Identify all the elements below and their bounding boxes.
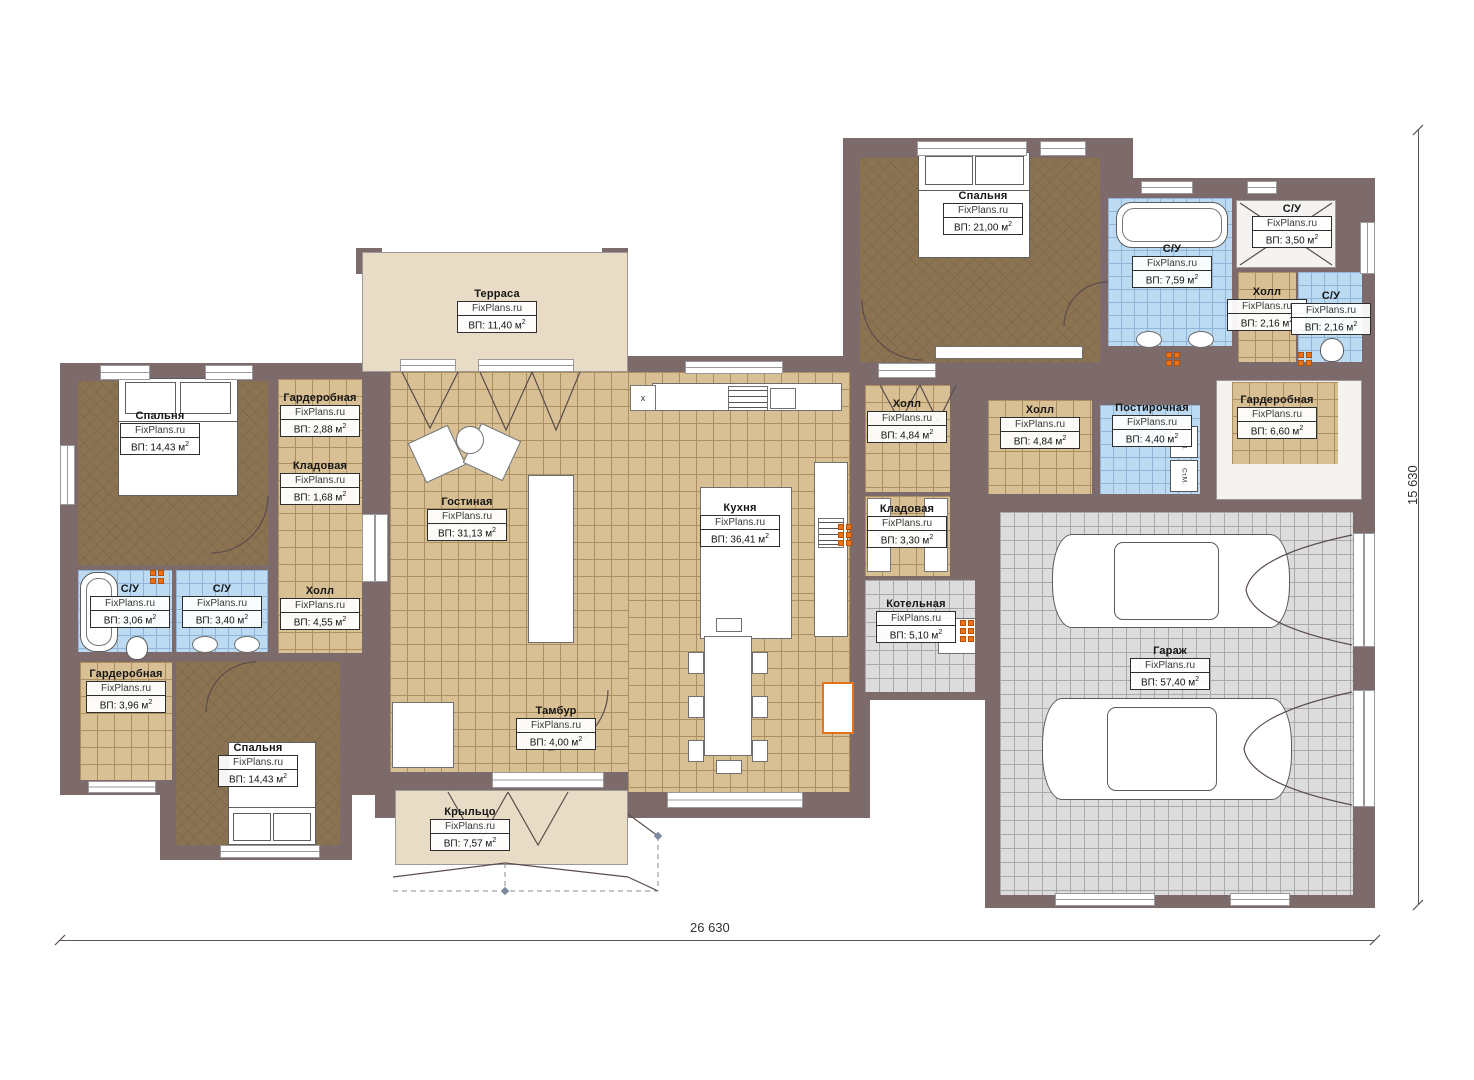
room-area: ВП: 14,43 м2 [218, 769, 298, 787]
room-su-tr2-label: С/УFixPlans.ruВП: 3,50 м2 [1252, 203, 1332, 248]
room-area: ВП: 3,40 м2 [182, 610, 262, 628]
heater-dot [846, 540, 852, 546]
watermark: FixPlans.ru [1252, 216, 1332, 231]
room-terrace-label: ТеррасаFixPlans.ruВП: 11,40 м2 [457, 288, 537, 333]
room-bedroom-tl-label: СпальняFixPlans.ruВП: 14,43 м2 [120, 410, 200, 455]
furniture-item [716, 760, 742, 774]
room-name: С/У [1322, 290, 1340, 302]
room-area: ВП: 1,68 м2 [280, 487, 360, 505]
watermark: FixPlans.ru [876, 611, 956, 626]
room-area: ВП: 7,57 м2 [430, 833, 510, 851]
watermark: FixPlans.ru [280, 598, 360, 613]
room-su-l2-label: С/УFixPlans.ruВП: 3,40 м2 [182, 583, 262, 628]
watermark: FixPlans.ru [1237, 407, 1317, 422]
room-name: Крыльцо [444, 806, 495, 818]
heater-dot [1298, 360, 1304, 366]
watermark: FixPlans.ru [457, 301, 537, 316]
room-name: Холл [1026, 404, 1054, 416]
room-name: Котельная [886, 598, 945, 610]
x-marker: x [630, 385, 656, 411]
room-name: Спальня [959, 190, 1008, 202]
room-name: Гардеробная [283, 392, 356, 404]
room-name: Кладовая [880, 503, 934, 515]
room-name: С/У [1163, 243, 1181, 255]
window-horizontal [1141, 181, 1193, 194]
heater-dot [158, 570, 164, 576]
room-laundry-label: ПостирочнаяFixPlans.ruВП: 4,40 м2 [1112, 402, 1192, 447]
window-horizontal [685, 361, 783, 374]
furniture-item [528, 475, 574, 643]
room-hall-r-label: ХоллFixPlans.ruВП: 4,84 м2 [1000, 404, 1080, 449]
window-horizontal [400, 359, 456, 372]
furniture-item [688, 740, 704, 762]
heater-dot [846, 524, 852, 530]
sink-icon [1136, 331, 1162, 348]
room-area: ВП: 4,84 м2 [1000, 431, 1080, 449]
room-pantry-c-label: КладоваяFixPlans.ruВП: 3,30 м2 [867, 503, 947, 548]
furniture-item [770, 388, 796, 409]
room-area: ВП: 36,41 м2 [700, 529, 780, 547]
room-area: ВП: 3,50 м2 [1252, 230, 1332, 248]
room-bedroom-tr-label: СпальняFixPlans.ruВП: 21,00 м2 [943, 190, 1023, 235]
room-hall-l-floor [278, 513, 362, 653]
heater-dot [1166, 352, 1172, 358]
watermark: FixPlans.ru [90, 596, 170, 611]
watermark: FixPlans.ru [218, 755, 298, 770]
heater-dot [968, 628, 974, 634]
watermark: FixPlans.ru [1291, 303, 1371, 318]
heater-dot [960, 636, 966, 642]
window-horizontal [667, 792, 803, 808]
watermark: FixPlans.ru [1130, 658, 1210, 673]
washing-machine-icon: Ст.М. [1170, 460, 1198, 492]
heater-dot [838, 532, 844, 538]
room-area: ВП: 2,88 м2 [280, 419, 360, 437]
watermark: FixPlans.ru [867, 516, 947, 531]
room-name: Холл [306, 585, 334, 597]
room-hall-l-label: ХоллFixPlans.ruВП: 4,55 м2 [280, 585, 360, 630]
room-wardrobe-r-label: ГардеробнаяFixPlans.ruВП: 6,60 м2 [1237, 394, 1317, 439]
room-name: Кладовая [293, 460, 347, 472]
window-horizontal [1247, 181, 1277, 194]
room-name: Кухня [723, 502, 756, 514]
room-area: ВП: 3,06 м2 [90, 610, 170, 628]
room-living-label: ГостинаяFixPlans.ruВП: 31,13 м2 [427, 496, 507, 541]
toilet-icon [126, 636, 148, 660]
room-name: Холл [893, 398, 921, 410]
room-garage-label: ГаражFixPlans.ruВП: 57,40 м2 [1130, 645, 1210, 690]
furniture-item [814, 462, 848, 637]
room-area: ВП: 6,60 м2 [1237, 421, 1317, 439]
watermark: FixPlans.ru [1112, 415, 1192, 430]
dimension-width-label: 26 630 [690, 920, 730, 935]
heater-dot [1306, 360, 1312, 366]
window-horizontal [1230, 893, 1290, 906]
car-icon [1052, 534, 1290, 628]
room-porch-label: КрыльцоFixPlans.ruВП: 7,57 м2 [430, 806, 510, 851]
heater-dot [846, 532, 852, 538]
room-bedroom-bl-label: СпальняFixPlans.ruВП: 14,43 м2 [218, 742, 298, 787]
room-name: Постирочная [1115, 402, 1189, 414]
heater-dot [960, 628, 966, 634]
room-area: ВП: 57,40 м2 [1130, 672, 1210, 690]
room-area: ВП: 3,30 м2 [867, 530, 947, 548]
furniture-item [935, 346, 1083, 359]
room-area: ВП: 4,40 м2 [1112, 429, 1192, 447]
bathtub-icon [1116, 202, 1228, 248]
dimension-line-bottom [60, 940, 1375, 941]
room-name: Спальня [136, 410, 185, 422]
room-area: ВП: 21,00 м2 [943, 217, 1023, 235]
window-vertical [1353, 690, 1375, 807]
watermark: FixPlans.ru [427, 509, 507, 524]
room-boiler-label: КотельнаяFixPlans.ruВП: 5,10 м2 [876, 598, 956, 643]
dimension-line-right [1418, 130, 1419, 905]
sink-icon [192, 636, 218, 653]
room-area: ВП: 14,43 м2 [120, 437, 200, 455]
room-area: ВП: 4,00 м2 [516, 732, 596, 750]
watermark: FixPlans.ru [280, 473, 360, 488]
window-horizontal [205, 365, 253, 380]
room-area: ВП: 2,16 м2 [1291, 317, 1371, 335]
watermark: FixPlans.ru [86, 681, 166, 696]
window-horizontal [100, 365, 150, 380]
furniture-item [688, 652, 704, 674]
room-wardrobe-bl-label: ГардеробнаяFixPlans.ruВП: 3,96 м2 [86, 668, 166, 713]
room-kitchen-label: КухняFixPlans.ruВП: 36,41 м2 [700, 502, 780, 547]
furniture-item [752, 652, 768, 674]
window-vertical [1360, 222, 1375, 274]
heater-dot [838, 540, 844, 546]
window-vertical [60, 445, 75, 505]
room-name: Терраса [474, 288, 520, 300]
window-horizontal [220, 845, 320, 858]
window-horizontal [878, 363, 936, 378]
furniture-item [392, 702, 454, 768]
room-name: Холл [1253, 286, 1281, 298]
room-area: ВП: 4,55 м2 [280, 612, 360, 630]
window-vertical [362, 514, 388, 582]
room-su-tr1-label: С/УFixPlans.ruВП: 7,59 м2 [1132, 243, 1212, 288]
room-name: С/У [213, 583, 231, 595]
watermark: FixPlans.ru [280, 405, 360, 420]
window-horizontal [1040, 141, 1086, 156]
room-name: Гардеробная [1240, 394, 1313, 406]
watermark: FixPlans.ru [943, 203, 1023, 218]
floor-plan-canvas: 26 630 15 630 ✕✕Ст.М.Ст.М.xТеррасаFixPla… [0, 0, 1474, 1080]
room-area: ВП: 3,96 м2 [86, 695, 166, 713]
sink-icon [1188, 331, 1214, 348]
room-name: С/У [1283, 203, 1301, 215]
furniture-item [688, 696, 704, 718]
room-name: Спальня [234, 742, 283, 754]
room-area: ВП: 7,59 м2 [1132, 270, 1212, 288]
heater-dot [960, 620, 966, 626]
radiator-icon [822, 682, 854, 734]
heater-dot [838, 524, 844, 530]
heater-dot [968, 620, 974, 626]
room-area: ВП: 5,10 м2 [876, 625, 956, 643]
heater-dot [1166, 360, 1172, 366]
room-name: Тамбур [535, 705, 576, 717]
toilet-icon [1320, 338, 1344, 362]
sink-icon [234, 636, 260, 653]
car-icon [1042, 698, 1292, 800]
window-horizontal [478, 359, 574, 372]
watermark: FixPlans.ru [516, 718, 596, 733]
window-horizontal [917, 141, 1027, 156]
window-horizontal [492, 772, 604, 788]
watermark: FixPlans.ru [700, 515, 780, 530]
stove-icon [728, 386, 768, 411]
room-name: Гардеробная [89, 668, 162, 680]
room-su-tr3-label: С/УFixPlans.ruВП: 2,16 м2 [1291, 290, 1371, 335]
furniture-item [704, 636, 752, 756]
window-horizontal [1055, 893, 1155, 906]
room-pantry-l-label: КладоваяFixPlans.ruВП: 1,68 м2 [280, 460, 360, 505]
room-name: Гостиная [441, 496, 492, 508]
room-area: ВП: 4,84 м2 [867, 425, 947, 443]
room-area: ВП: 31,13 м2 [427, 523, 507, 541]
furniture-item [752, 740, 768, 762]
heater-dot [150, 570, 156, 576]
watermark: FixPlans.ru [1000, 417, 1080, 432]
window-horizontal [88, 781, 156, 793]
furniture-item [716, 618, 742, 632]
heater-dot [1298, 352, 1304, 358]
watermark: FixPlans.ru [867, 411, 947, 426]
room-wardrobe-tl-label: ГардеробнаяFixPlans.ruВП: 2,88 м2 [280, 392, 360, 437]
watermark: FixPlans.ru [120, 423, 200, 438]
furniture-item [752, 696, 768, 718]
watermark: FixPlans.ru [1132, 256, 1212, 271]
room-name: С/У [121, 583, 139, 595]
room-su-l1-label: С/УFixPlans.ruВП: 3,06 м2 [90, 583, 170, 628]
heater-dot [1174, 360, 1180, 366]
heater-dot [1306, 352, 1312, 358]
heater-dot [1174, 352, 1180, 358]
window-vertical [1353, 533, 1375, 647]
watermark: FixPlans.ru [430, 819, 510, 834]
room-hall-c-label: ХоллFixPlans.ruВП: 4,84 м2 [867, 398, 947, 443]
room-name: Гараж [1153, 645, 1187, 657]
heater-dot [968, 636, 974, 642]
room-area: ВП: 11,40 м2 [457, 315, 537, 333]
watermark: FixPlans.ru [182, 596, 262, 611]
sink-icon [456, 426, 484, 454]
room-tambur-label: ТамбурFixPlans.ruВП: 4,00 м2 [516, 705, 596, 750]
